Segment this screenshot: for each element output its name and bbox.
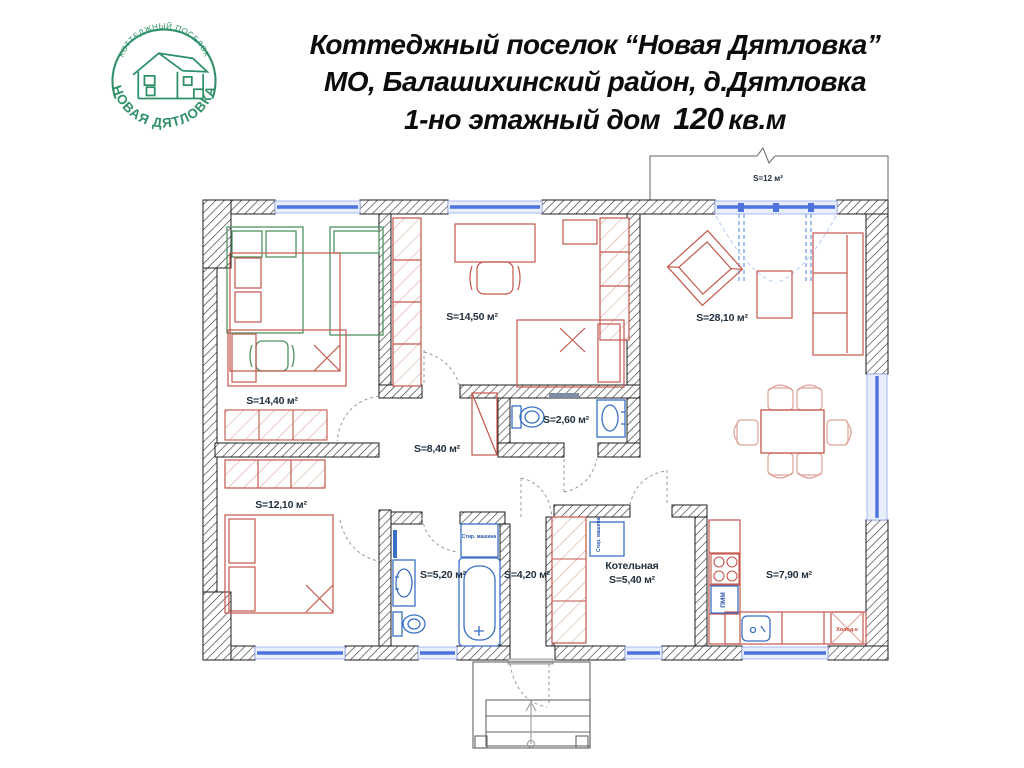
room-label-terrace: S=12 м² [753, 174, 783, 183]
room-label-hallway: S=8,40 м² [414, 443, 461, 455]
wc-shelf [549, 393, 579, 398]
window [625, 647, 662, 659]
dishwasher: ПММ [711, 586, 738, 613]
floor-plan: S=12 м² [0, 0, 1024, 768]
furniture-bedroom-bottom-left [225, 460, 333, 613]
fridge: Холод-к [831, 612, 863, 644]
porch [473, 659, 590, 748]
kitchen-sink-icon [742, 616, 770, 641]
room-label-bathroom: S=5,20 м² [420, 569, 467, 581]
sofa-icon [813, 233, 863, 355]
dishwasher-label: ПММ [720, 592, 727, 608]
washer-label: Стир. машина [596, 517, 602, 552]
furniture-bedroom-top-middle [393, 218, 629, 387]
toilet-icon [393, 612, 425, 636]
washing-machine: Стир. машина [590, 517, 624, 556]
window [275, 201, 360, 213]
washing-machine: Стир. машина [461, 524, 498, 557]
toilet-icon [512, 406, 544, 428]
washer-label: Стир. машина [462, 534, 497, 540]
entry-arrow [526, 702, 536, 748]
room-label-boiler-area: S=5,40 м² [609, 574, 656, 586]
room-label-bedroom-bottom-left: S=12,10 м² [255, 499, 307, 511]
kitchen-contents: ПММ Холод-к [709, 520, 866, 644]
floor-plan-page: КОТТЕДЖНЫЙ ПОСЕЛОК НОВАЯ ДЯТЛОВКА Коттед… [0, 0, 1024, 768]
sink-icon [597, 400, 625, 437]
window [418, 647, 457, 659]
room-label-entrance-hall: S=4,20 м² [504, 569, 551, 581]
dining-table [761, 410, 824, 453]
dining-set [734, 385, 851, 478]
room-label-boiler-name: Котельная [605, 560, 658, 572]
room-label-kitchen: S=7,90 м² [766, 569, 813, 581]
sink-icon [393, 560, 415, 606]
mirror-icon [393, 530, 397, 558]
hallway-cabinet [472, 393, 497, 455]
window [742, 647, 828, 659]
room-label-living-room: S=28,10 м² [696, 312, 748, 324]
fridge-label: Холод-к [836, 627, 858, 633]
furniture-living-room [668, 231, 863, 478]
room-label-bedroom-top-left: S=14,40 м² [246, 395, 298, 407]
room-label-bedroom-top-middle: S=14,50 м² [446, 311, 498, 323]
bathroom-fixtures: Стир. машина [393, 524, 500, 646]
boiler-closet [552, 517, 586, 643]
window [448, 201, 542, 213]
furniture-bedroom-top-left [225, 227, 383, 440]
room-label-wc: S=2,60 м² [543, 414, 590, 426]
stove-icon [711, 554, 739, 584]
window [867, 374, 887, 520]
window [255, 647, 345, 659]
